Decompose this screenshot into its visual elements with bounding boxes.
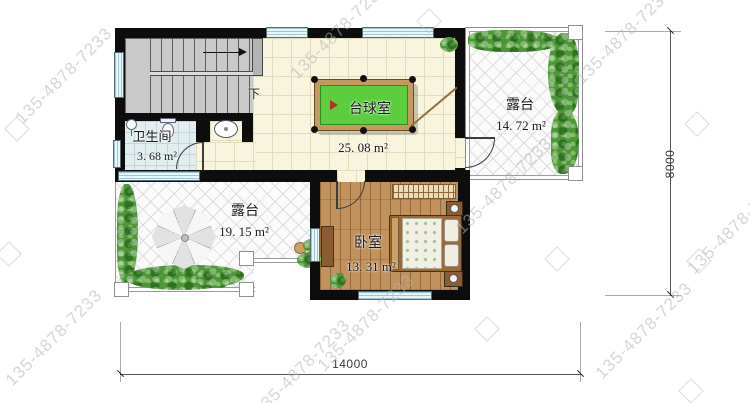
- terrace-post: [239, 251, 254, 266]
- lamp: [450, 204, 459, 213]
- wardrobe: [392, 184, 456, 199]
- door-leaf-terrace: [465, 137, 495, 139]
- pool-pocket: [360, 75, 367, 82]
- watermark-text: 135-4878-7233: [572, 0, 677, 88]
- watermark-diamond: [474, 316, 499, 341]
- room-area-bedroom: 13. 31 m²: [346, 259, 396, 275]
- room-label-terrace-top: 露台: [506, 94, 534, 114]
- umbrella-pole: [181, 234, 189, 242]
- wall-stair-bath: [115, 113, 253, 121]
- room-label-billiard: 台球室: [349, 98, 391, 118]
- watermark-diamond: [4, 116, 29, 141]
- door-leaf-bathroom: [202, 142, 204, 170]
- pool-pocket: [409, 126, 416, 133]
- mattress: [402, 218, 442, 269]
- corner-plant: [440, 37, 458, 52]
- watermark-diamond: [686, 248, 711, 273]
- door-gap-terrace: [455, 138, 465, 168]
- watermark-text: 135-4878-7233: [2, 286, 107, 391]
- room-area-bathroom: 3. 68 m²: [137, 149, 177, 164]
- room-label-terrace-bottom: 露台: [231, 200, 259, 220]
- wall-nook-pillar: [242, 113, 253, 142]
- stair-run-lower: [150, 75, 253, 113]
- basin-drain: [224, 127, 228, 131]
- room-label-bedroom: 卧室: [354, 232, 382, 252]
- window-billiard-north-2: [362, 27, 434, 38]
- watermark-text: 135-4878-7233: [12, 24, 117, 129]
- dim-text-bottom: 14000: [320, 357, 380, 371]
- pool-pocket: [311, 76, 318, 83]
- room-marker-icon: [330, 100, 338, 110]
- terrace-post: [568, 166, 583, 181]
- terrace-bottom-hedge: [196, 268, 230, 288]
- room-area-terrace-top: 14. 72 m²: [496, 118, 546, 134]
- hallway-floor: [196, 142, 256, 170]
- window-bedroom-west: [310, 228, 320, 262]
- watermark-text: 135-4878-7233: [684, 174, 750, 279]
- terrace-notch: [254, 263, 310, 292]
- watermark-diamond: [678, 378, 703, 403]
- desk: [321, 226, 334, 267]
- terrace-post: [239, 282, 254, 297]
- window-south-terrace: [118, 171, 200, 181]
- stair-rail: [150, 71, 253, 76]
- stair-cabinet: [252, 38, 263, 76]
- terrace-top-hedge: [468, 30, 562, 52]
- window-billiard-north-1: [266, 27, 308, 38]
- window-bedroom-south: [358, 291, 432, 300]
- watermark-diamond: [0, 241, 22, 266]
- floor-plan: 下 台球室 25. 08 m² 卧室 13. 31 m² 露台 14. 72 m…: [0, 0, 750, 403]
- stair-arrow: [239, 48, 247, 56]
- room-label-bathroom: 卫生间: [132, 126, 171, 145]
- wall-bath-east: [196, 113, 210, 142]
- window-stair-west: [114, 52, 124, 98]
- pillow: [444, 219, 459, 242]
- room-area-billiard: 25. 08 m²: [338, 140, 388, 156]
- door-leaf-bedroom: [336, 181, 338, 209]
- pool-pocket: [409, 76, 416, 83]
- pillow: [444, 244, 459, 267]
- dim-text-right: 8000: [663, 142, 677, 186]
- terrace-post: [114, 282, 129, 297]
- pool-pocket: [360, 127, 367, 134]
- watermark-diamond: [684, 111, 709, 136]
- watermark-diamond: [544, 246, 569, 271]
- pool-pocket: [311, 126, 318, 133]
- dim-line-bottom: [120, 374, 581, 375]
- stair-arrow-stem: [203, 52, 239, 53]
- window-bathroom-west: [113, 140, 121, 168]
- terrace-post: [568, 25, 583, 40]
- terrace-top-hedge: [548, 33, 579, 115]
- stair-down-label: 下: [248, 85, 260, 102]
- stair-run-upper: [150, 38, 253, 71]
- room-area-terrace-bottom: 19. 15 m²: [219, 224, 269, 240]
- lamp: [449, 274, 458, 283]
